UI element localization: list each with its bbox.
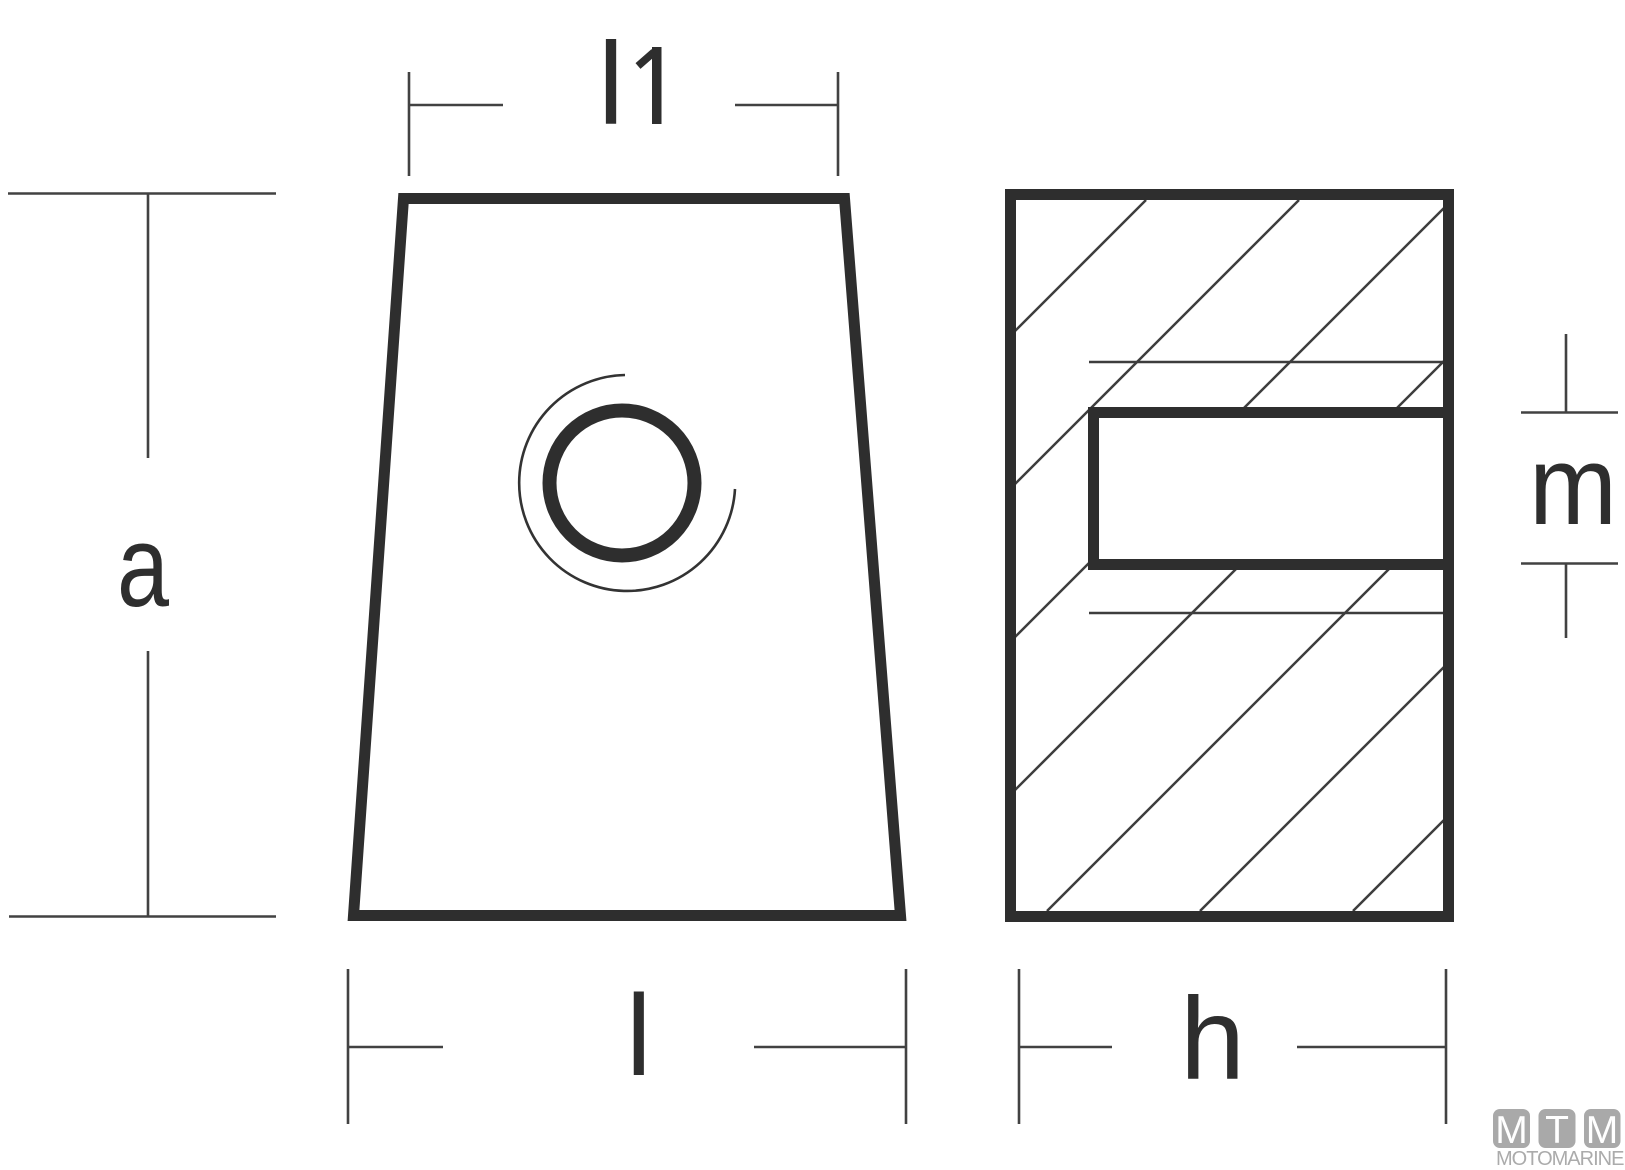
svg-text:l: l bbox=[626, 972, 652, 1100]
svg-text:l: l bbox=[598, 18, 624, 149]
svg-text:M: M bbox=[1586, 1109, 1619, 1152]
svg-text:a: a bbox=[117, 501, 169, 631]
svg-text:T: T bbox=[1545, 1109, 1569, 1152]
svg-text:M: M bbox=[1495, 1109, 1528, 1152]
svg-text:MOTOMARINE: MOTOMARINE bbox=[1496, 1148, 1624, 1170]
svg-text:h: h bbox=[1180, 973, 1245, 1104]
svg-text:m: m bbox=[1529, 423, 1617, 548]
